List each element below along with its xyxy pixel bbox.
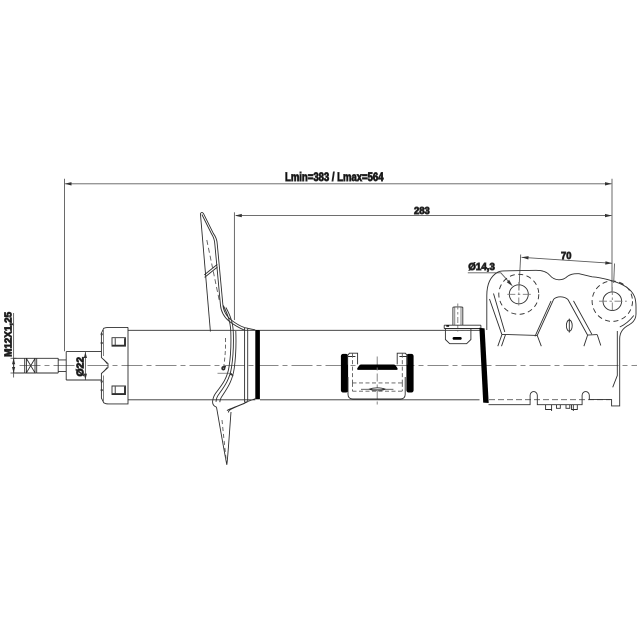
svg-text:σ: σ	[222, 366, 226, 372]
svg-text:Ø14,3: Ø14,3	[468, 262, 495, 273]
svg-text:Ø22: Ø22	[75, 357, 87, 377]
svg-text:70: 70	[561, 251, 572, 262]
svg-text:Lmin=383 / Lmax=564: Lmin=383 / Lmax=564	[285, 170, 384, 184]
svg-text:283: 283	[414, 206, 430, 217]
svg-text:M12X1,25: M12X1,25	[3, 312, 14, 357]
